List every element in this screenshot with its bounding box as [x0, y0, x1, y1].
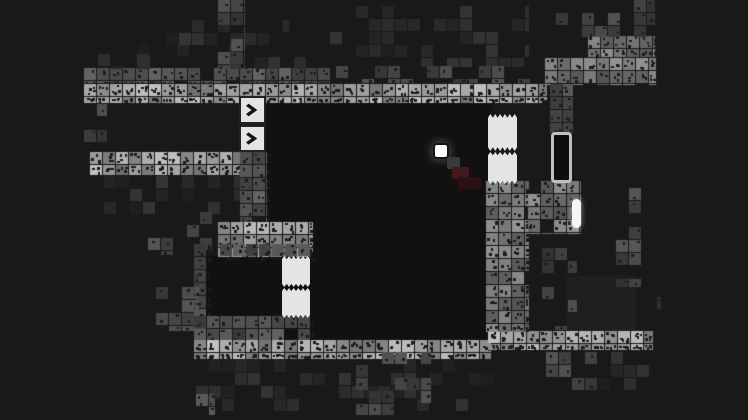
white-gate-left-upper-block: [282, 256, 310, 287]
white-gate-right-lower-block: [488, 152, 517, 184]
white-pill: [572, 199, 581, 228]
door-capsule: [551, 132, 572, 183]
conveyor-chevron-block-2: [239, 125, 266, 152]
chevron-right-icon: [244, 102, 260, 119]
chevron-right-icon: [244, 130, 260, 146]
white-gate-left-lower-block: [282, 288, 310, 318]
game-viewport: [0, 0, 748, 420]
player-trail-segment-3: [458, 177, 481, 189]
tilemap-canvas[interactable]: [0, 0, 748, 420]
white-gate-right-upper-block: [488, 114, 517, 151]
conveyor-chevron-block-1: [239, 96, 266, 124]
